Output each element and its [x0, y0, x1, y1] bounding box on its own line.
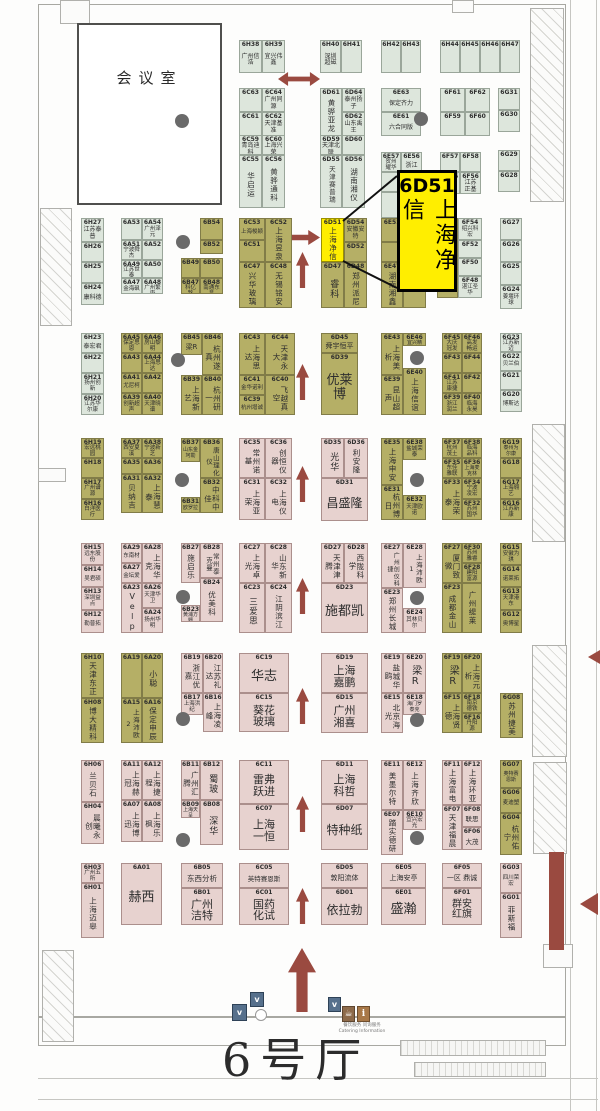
booth-6e32[interactable]: 6E32天津欧诺 [403, 495, 426, 520]
booth-6d61[interactable]: 6D61黄骅亚龙 [320, 88, 342, 136]
booth-6a53[interactable]: 6A53 [121, 218, 142, 240]
booth-6g04[interactable]: 6G04杭州佑宁 [500, 813, 522, 855]
highlight-callout-6d51[interactable]: 6D51 上海净信 [397, 170, 457, 292]
booth-6d62[interactable]: 6D62山东禹王 [342, 112, 365, 136]
booth-company-name: 天津港东 [501, 595, 521, 609]
booth-company-name: 东佳雅联 [443, 466, 461, 478]
booth-6b50[interactable]: 6B50 [200, 258, 223, 278]
booth-6e10[interactable]: 6E10宜兴宏光 [403, 810, 426, 830]
booth-6d64[interactable]: 6D64泰州扬子 [342, 88, 365, 112]
booth-6b45[interactable]: 6B45梁R [181, 333, 202, 355]
booth-company-name: 湖南湘仪 [350, 163, 358, 207]
booth-6f41[interactable]: 6F41江苏康捷 [442, 373, 462, 393]
booth-6c23[interactable]: 6C23三爱思 [239, 583, 265, 633]
booth-6f59[interactable]: 6F59 [440, 112, 465, 136]
booth-6e63[interactable]: 6E63保定齐力 [381, 88, 421, 112]
booth-6h01[interactable]: 6H01上海迈皋 [81, 883, 104, 938]
booth-6c51[interactable]: 6C51 [239, 240, 265, 262]
pillar-dot [171, 353, 185, 367]
booth-id: 6G28 [500, 172, 517, 179]
booth-6a39[interactable]: 6A39创新超声 [121, 393, 142, 415]
booth-6d01[interactable]: 6D01依拉勃 [321, 888, 368, 925]
booth-6h17[interactable]: 6H17广州谱源 [81, 478, 104, 499]
booth-6c05[interactable]: 6C05英特赛恩斯 [239, 863, 289, 888]
booth-6h04[interactable]: 6H04晨曦永创 [81, 802, 104, 844]
booth-6h12[interactable]: 6H12勒普拓 [81, 610, 104, 633]
booth-6c24[interactable]: 6C24江阴滨江 [265, 583, 292, 633]
booth-6h03[interactable]: 6H03广州五所 [81, 863, 104, 883]
booth-6h06[interactable]: 6H06兰贝石 [81, 760, 104, 802]
booth-6b47[interactable]: 6B47科亿路 [181, 278, 200, 294]
booth-6d51[interactable]: 6D51上海净信 [321, 218, 344, 262]
booth-6h42[interactable]: 6H42 [381, 40, 401, 73]
booth-6a35[interactable]: 6A35 [121, 458, 142, 474]
booth-6f36[interactable]: 6F36上海麦克林 [462, 458, 482, 478]
booth-6b52[interactable]: 6B52 [200, 240, 223, 254]
booth-6a15[interactable]: 6A15上海沛欧2 [121, 698, 142, 743]
booth-6e38[interactable]: 6E38盐城荣泰 [403, 438, 426, 460]
booth-6e35[interactable]: 6E35上海申安 [381, 438, 403, 485]
booth-6f34[interactable]: 6F34宁波凌宏 [462, 478, 482, 499]
booth-id: 6G20 [502, 391, 519, 398]
booth-6g08[interactable]: 6G08苏州捷美 [500, 693, 523, 738]
booth-6d27[interactable]: 6D27天津津腾 [321, 543, 344, 583]
booth-6a24[interactable]: 6A24扬州华明 [142, 608, 163, 633]
booth-id: 6A15 [123, 699, 140, 706]
booth-6h14[interactable]: 6H14吴君硕 [81, 565, 104, 587]
booth-6e40[interactable]: 6E40上海信谊 [403, 368, 426, 415]
booth-6c60[interactable]: 6C60上海兴荣 [262, 135, 285, 155]
booth-6c44[interactable]: 6C44天津永大 [265, 333, 295, 375]
booth-6e39[interactable]: 6E39昆山超声 [381, 375, 403, 415]
booth-6c53[interactable]: 6C53上海梭颖 [239, 218, 265, 240]
booth-6d48[interactable]: 6D48郑州派尼 [344, 262, 367, 308]
booth-6c15[interactable]: 6C15葵花 玻璃 [239, 693, 289, 732]
booth-6e12[interactable]: 6E12上海齐欣 [403, 760, 426, 810]
booth-id: 6C23 [244, 584, 261, 591]
booth-6d23[interactable]: 6D23施都凯 [321, 583, 368, 633]
booth-6a01[interactable]: 6A01赫西 [121, 863, 162, 925]
booth-6a23[interactable]: 6A23Velp [121, 583, 142, 633]
booth-6a28[interactable]: 6A28上海华克 [142, 543, 163, 583]
booth-6c19[interactable]: 6C19华志 [239, 653, 289, 693]
booth-6g28[interactable]: 6G28 [498, 171, 520, 192]
booth-6c40[interactable]: 6C40飞越真空 [265, 375, 295, 415]
booth-6e57[interactable]: 6E57贺州耀华 [381, 152, 401, 172]
booth-6f44[interactable]: 6F44 [462, 353, 482, 373]
booth-6g14[interactable]: 6G14诺莱拓 [500, 565, 522, 587]
booth-6f15[interactable]: 6F15上海贤德 [442, 693, 462, 733]
booth-6f18[interactable]: 6F18南京德铁 [462, 693, 482, 713]
booth-6d55[interactable]: 6D55天津赛普瑞 [320, 155, 342, 208]
booth-id: 6H39 [265, 41, 283, 48]
booth-6b12[interactable]: 6B12蜀玻 [200, 760, 223, 800]
booth-6a11[interactable]: 6A11上海赫冠 [121, 760, 142, 800]
booth-company-name: 兴华玻璃 [248, 270, 256, 307]
booth-6h20[interactable]: 6H20江苏华尔康 [81, 394, 104, 415]
booth-6f57[interactable]: 6F57 [440, 152, 460, 172]
booth-id: 6G30 [500, 111, 517, 118]
booth-id: 6C11 [256, 761, 273, 768]
booth-company-name: 上海贤德 [444, 701, 460, 732]
booth-6b39[interactable]: 6B39上海新艺 [181, 375, 202, 415]
booth-6g03[interactable]: 6G03四川荣宏 [500, 863, 522, 893]
booth-company-name: 优莱博 [322, 361, 357, 414]
booth-6c07[interactable]: 6C07上海 一恒 [239, 804, 289, 850]
booth-6d31[interactable]: 6D31昌盛隆 [321, 478, 368, 521]
booth-id: 6A31 [123, 475, 140, 482]
booth-6a43[interactable]: 6A43 [121, 353, 142, 373]
booth-6e24[interactable]: 6E24其林贝尔 [403, 608, 426, 633]
booth-6b36[interactable]: 6B36唐山理化仪 [200, 438, 223, 478]
booth-6e28[interactable]: 6E28上海沛欧1 [403, 543, 426, 588]
booth-company-name: 梁R [185, 341, 199, 354]
booth-6a40[interactable]: 6A40天津晓谱 [142, 393, 163, 415]
booth-6b46[interactable]: 6B46杭州遂真 [202, 333, 223, 375]
booth-6g18[interactable]: 6G18 [500, 458, 522, 478]
booth-6c47[interactable]: 6C47兴华玻璃 [239, 262, 265, 308]
booth-6b32[interactable]: 6B32中科中佳 [200, 478, 223, 513]
booth-id: 6F05 [454, 864, 471, 871]
booth-6f61[interactable]: 6F61 [440, 88, 465, 112]
booth-6b48[interactable]: 6B48南通东昌 [200, 278, 223, 294]
booth-6e20[interactable]: 6E20梁R [403, 653, 426, 693]
booth-6d36[interactable]: 6D36利安隆 [344, 438, 368, 478]
booth-id: 6G07 [502, 761, 519, 768]
booth-6h38[interactable]: 6H38广州信浩 [239, 40, 262, 73]
booth-6c59[interactable]: 6C59青岛迪科 [239, 135, 262, 155]
booth-6h24[interactable]: 6H24康科德 [81, 283, 104, 305]
booth-6b24[interactable]: 6B24优美科 [200, 578, 223, 622]
booth-6a27[interactable]: 6A27金坛爱 [121, 563, 142, 583]
booth-6d15[interactable]: 6D15广州 湘喜 [321, 693, 368, 733]
booth-6b49[interactable]: 6B49 [181, 258, 200, 278]
booth-company-name: 安徽为琪 [501, 551, 521, 564]
booth-6f42[interactable]: 6F42 [462, 373, 482, 393]
booth-6f46[interactable]: 6F46高发畅运 [462, 333, 482, 353]
booth-6a41[interactable]: 6A41尤尼柯 [121, 373, 142, 393]
booth-id: 6H47 [501, 41, 519, 48]
booth-6h16[interactable]: 6H16白洋医疗 [81, 499, 104, 520]
booth-6a38[interactable]: 6A38宁波新芝 [142, 438, 163, 458]
booth-6a37[interactable]: 6A37西安夏溪 [121, 438, 142, 458]
booth-6g24[interactable]: 6G24姜堰环球 [500, 285, 522, 309]
booth-6f37[interactable]: 6F37杭州茂土 [442, 438, 462, 458]
booth-6h45[interactable]: 6H45 [460, 40, 480, 73]
booth-id: 6B16 [204, 694, 221, 701]
booth-6b54[interactable]: 6B54 [200, 218, 223, 240]
booth-6g29[interactable]: 6G29 [498, 150, 520, 171]
booth-6g15[interactable]: 6G15安徽为琪 [500, 543, 522, 565]
booth-6f43[interactable]: 6F43 [442, 353, 462, 373]
booth-6h13[interactable]: 6H13深圳益点 [81, 587, 104, 610]
booth-6b20[interactable]: 6B20江苏礼达 [203, 653, 223, 693]
pillar-dot [410, 831, 424, 845]
booth-6f30[interactable]: 6F30苏州雅睿 [462, 543, 482, 563]
booth-6g01[interactable]: 6G01菲斯福 [500, 893, 522, 938]
booth-id: 6A27 [123, 564, 140, 571]
booth-id: 6G06 [502, 789, 519, 796]
booth-6d07[interactable]: 6D07特种纸 [321, 804, 368, 850]
booth-6f39[interactable]: 6F39浙江润兰 [442, 393, 462, 415]
booth-6d35[interactable]: 6D35光华 [321, 438, 344, 478]
booth-6b40[interactable]: 6B40杭州研一 [202, 375, 223, 415]
booth-6a45[interactable]: 6A45保定思恩 [121, 333, 142, 353]
booth-6e15[interactable]: 6E15北京海光 [381, 693, 403, 733]
booth-6c48[interactable]: 6C48无锡铭安 [265, 262, 292, 308]
booth-6b28[interactable]: 6B28常州泰克曼 [200, 543, 223, 578]
booth-6f50[interactable]: 6F50 [458, 258, 482, 276]
booth-6f01[interactable]: 6F01群安 红旗 [442, 888, 482, 925]
booth-6d47[interactable]: 6D47睿科 [321, 262, 344, 308]
booth-6e43[interactable]: 6E43上海美析 [381, 333, 403, 375]
booth-company-name: 华启运 [247, 163, 255, 207]
booth-6g30[interactable]: 6G30 [498, 110, 520, 132]
booth-6c01[interactable]: 6C01国药 化试 [239, 888, 289, 925]
booth-company-name: 江苏新迈 [501, 341, 521, 352]
booth-6g07[interactable]: 6G07奥特赛恩斯 [500, 760, 522, 788]
booth-company-name: 天津津腾 [325, 551, 341, 582]
booth-6d19[interactable]: 6D19上海 嘉鹏 [321, 653, 368, 693]
booth-id: 6F44 [464, 354, 481, 361]
booth-6e05[interactable]: 6E05上海安亭 [381, 863, 426, 888]
booth-6f05[interactable]: 6F05一区 鼎诚 [442, 863, 482, 888]
booth-6a46[interactable]: 6A46房山黎明 [142, 333, 163, 353]
booth-6f23[interactable]: 6F23成都金山 [442, 583, 462, 633]
booth-6b23[interactable]: 6B23黄浦方野 [181, 605, 200, 622]
booth-6h25[interactable]: 6H25 [81, 262, 104, 283]
booth-6a47[interactable]: 6A47金海砜 [121, 278, 142, 294]
booth-6c63[interactable]: 6C63 [239, 88, 262, 112]
booth-6f40[interactable]: 6F40临海永昊 [462, 393, 482, 415]
booth-6a07[interactable]: 6A07上海博迅 [121, 800, 142, 842]
booth-6e11[interactable]: 6E11美墨尔特 [381, 760, 403, 810]
booth-6b08[interactable]: 6B08深华 [200, 800, 223, 845]
booth-6h08[interactable]: 6H08博大精科 [81, 698, 104, 743]
booth-6f19[interactable]: 6F19梁R [442, 653, 462, 693]
booth-6f27[interactable]: 6F27厦门致微 [442, 543, 462, 583]
booth-6h47[interactable]: 6H47 [500, 40, 520, 73]
booth-6g23[interactable]: 6G23江苏新迈 [500, 333, 522, 352]
booth-6c41[interactable]: 6C41金华诺利 [239, 375, 265, 395]
booth-6d60[interactable]: 6D60 [342, 135, 365, 155]
booth-company-name: 广州缇莱 [468, 584, 476, 632]
booth-6c56[interactable]: 6C56黄骅通科 [262, 155, 285, 208]
booth-company-name: 上海乐枫 [145, 808, 161, 841]
booth-6c62[interactable]: 6C62天津基准 [262, 112, 285, 136]
booth-id: 6B46 [204, 334, 221, 341]
booth-company-name: 上海仪电 [271, 486, 287, 519]
booth-6c11[interactable]: 6C11雷弗 跃进 [239, 760, 289, 804]
booth-6h43[interactable]: 6H43 [401, 40, 421, 73]
booth-6e01[interactable]: 6E01盛瀚 [381, 888, 426, 925]
booth-6f58[interactable]: 6F58 [460, 152, 481, 172]
booth-6h44[interactable]: 6H44 [440, 40, 460, 73]
booth-6f32[interactable]: 6F32苏州国华 [462, 499, 482, 520]
booth-6f35[interactable]: 6F35东佳雅联 [442, 458, 462, 478]
booth-6c61[interactable]: 6C61 [239, 112, 262, 136]
booth-company-name: 唐山理化仪 [205, 446, 219, 477]
booth-6b16[interactable]: 6B16上海凌峰 [203, 693, 223, 732]
booth-6f54[interactable]: 6F54绍兴科宏 [458, 218, 482, 240]
booth-id: 6F15 [444, 694, 461, 701]
booth-6d52[interactable]: 6D52 [344, 242, 367, 262]
booth-6f07[interactable]: 6F07天津福晨 [442, 805, 462, 850]
booth-6a16[interactable]: 6A16保定申辰 [142, 698, 163, 743]
booth-6f45[interactable]: 6F45大庆冠发 [442, 333, 462, 353]
booth-6g16[interactable]: 6G16江苏新康 [500, 499, 522, 520]
pillar-dot [414, 112, 428, 126]
booth-6c27[interactable]: 6C27上海卓光 [239, 543, 265, 583]
booth-6f28[interactable]: 6F28建阳富源 [462, 563, 482, 583]
booth-6a44[interactable]: 6A44上海思达 [142, 353, 163, 373]
booth-6a42[interactable]: 6A42 [142, 373, 163, 393]
booth-6a12[interactable]: 6A12上海捷程 [142, 760, 163, 800]
booth-6h19[interactable]: 6H19宏远桃园 [81, 438, 104, 458]
booth-6a20[interactable]: 6A20小聪 [142, 653, 163, 698]
booth-company-name: 上海净信 [329, 226, 337, 261]
booth-6a49[interactable]: 6A49江苏世泰 [121, 260, 142, 278]
booth-6h41[interactable]: 6H41 [341, 40, 362, 73]
booth-6b27[interactable]: 6B27施启乐 [181, 543, 200, 583]
booth-6g31[interactable]: 6G31 [498, 88, 520, 110]
booth-6a52[interactable]: 6A52 [142, 240, 163, 260]
booth-6c28[interactable]: 6C28山东新华 [265, 543, 292, 583]
booth-6g19[interactable]: 6G19泰州为尔康 [500, 438, 522, 458]
booth-6g20[interactable]: 6G20博斯达 [500, 390, 522, 412]
booth-6c36[interactable]: 6C36创恒仪器 [265, 438, 292, 478]
booth-6g13[interactable]: 6G13天津港东 [500, 587, 522, 610]
booth-6b11[interactable]: 6B11广州汇腾 [181, 760, 200, 800]
booth-6e27[interactable]: 6E27广州创仪科捷 [381, 543, 403, 588]
booth-6a29[interactable]: 6A29东南材 [121, 543, 142, 563]
booth-6g21[interactable]: 6G21 [500, 371, 522, 390]
booth-6c64[interactable]: 6C64广州同源 [262, 88, 285, 112]
booth-6a54[interactable]: 6A54广州泽元 [142, 218, 163, 240]
booth-company-name: 上海天呈 [182, 808, 199, 818]
booth-6e18[interactable]: 6E18海门罗泰克 [403, 693, 426, 715]
booth-6d05[interactable]: 6D05敦阳流体 [321, 863, 368, 888]
booth-6g17[interactable]: 6G17上海翱艺 [500, 478, 522, 499]
booth-6a31[interactable]: 6A31贝纳吉 [121, 474, 142, 513]
booth-id: 6H42 [382, 41, 400, 48]
booth-6d28[interactable]: 6D28西陇科学 [344, 543, 368, 583]
booth-6g06[interactable]: 6G06麦迪塑 [500, 788, 522, 813]
booth-6f20[interactable]: 6F20上海元析 [462, 653, 482, 693]
booth-6d56[interactable]: 6D56湖南湘仪 [342, 155, 365, 208]
booth-6f08[interactable]: 6F08联思 [462, 805, 482, 827]
booth-company-name: 奥博星 [502, 618, 521, 632]
booth-6b19[interactable]: 6B19浙江优嘉 [181, 653, 203, 693]
booth-6c35[interactable]: 6C35常州诺基 [239, 438, 265, 478]
booth-6h27[interactable]: 6H27江苏泰普 [81, 218, 104, 242]
booth-company-name: 浙江优嘉 [184, 661, 200, 692]
booth-6f52[interactable]: 6F52 [458, 240, 482, 258]
booth-6a32[interactable]: 6A32上海慧泰 [142, 474, 163, 513]
booth-6f60[interactable]: 6F60 [465, 112, 490, 136]
booth-6b01[interactable]: 6B01广州 洁特 [181, 888, 223, 925]
booth-6d11[interactable]: 6D11上海 科哲 [321, 760, 368, 804]
booth-6b31[interactable]: 6B31欧罗拉 [181, 497, 200, 513]
booth-6a36[interactable]: 6A36 [142, 458, 163, 474]
booth-6d54[interactable]: 6D54安徽安特 [344, 218, 367, 242]
booth-6b05[interactable]: 6B05东西分析 [181, 863, 223, 888]
booth-6f62[interactable]: 6F62 [465, 88, 490, 112]
booth-company-name: 天津华卫 [143, 591, 162, 607]
booth-company-name: 上海华克 [145, 551, 161, 582]
booth-6e46[interactable]: 6E46宜兴精品 [403, 333, 426, 346]
booth-company-name: 一区 鼎诚 [446, 871, 478, 887]
booth-6d45[interactable]: 6D45舜宇恒平 [321, 333, 358, 353]
booth-6c43[interactable]: 6C43上海思达 [239, 333, 265, 375]
booth-6h26[interactable]: 6H26 [81, 242, 104, 262]
booth-6b37[interactable]: 6B37山东金坷勒 [181, 438, 200, 462]
booth-6d39[interactable]: 6D39优莱博 [321, 353, 358, 415]
booth-6c39[interactable]: 6C39杭州增诚 [239, 395, 265, 415]
booth-6c52[interactable]: 6C52上海昱泉 [265, 218, 292, 262]
booth-6e07[interactable]: 6E07踏实德研 [381, 810, 403, 855]
booth-6g25[interactable]: 6G25 [500, 262, 522, 285]
booth-6c31[interactable]: 6C31上海亚荣 [239, 478, 265, 520]
building-structure [533, 762, 567, 854]
booth-6h23[interactable]: 6H23泰宏君 [81, 333, 104, 353]
booth-6c55[interactable]: 6C55华启运 [239, 155, 262, 208]
booth-6g26[interactable]: 6G26 [500, 240, 522, 262]
booth-cell[interactable]: 广州缇莱 [462, 583, 482, 633]
booth-6g22[interactable]: 6G22贝兰伯 [500, 352, 522, 371]
booth-6a50[interactable]: 6A50 [142, 260, 163, 278]
booth-6h46[interactable]: 6H46 [480, 40, 500, 73]
booth-6a19[interactable]: 6A19 [121, 653, 142, 698]
booth-6f11[interactable]: 6F11上海富电 [442, 760, 462, 805]
booth-6e23[interactable]: 6E23郑州长城 [381, 588, 403, 633]
booth-6h21[interactable]: 6H21扬州创新 [81, 373, 104, 394]
booth-6a26[interactable]: 6A26天津华卫 [142, 583, 163, 608]
booth-6h10[interactable]: 6H10天津东正 [81, 653, 104, 698]
booth-6g12[interactable]: 6G12奥博星 [500, 610, 522, 633]
booth-company-name: 绍兴科宏 [459, 226, 481, 239]
booth-6e56[interactable]: 6E56浙江 [401, 152, 422, 172]
pillar-dot [176, 712, 190, 726]
booth-6b09[interactable]: 6B09上海天呈 [181, 800, 200, 818]
booth-6f56[interactable]: 6F56江苏正基 [460, 172, 481, 194]
booth-6f33[interactable]: 6F33上海荣泰 [442, 478, 462, 520]
booth-6f48[interactable]: 6F48湛江圣华 [458, 276, 482, 298]
booth-6a51[interactable]: 6A51宁波舜杰 [121, 240, 142, 260]
booth-6g27[interactable]: 6G27 [500, 218, 522, 240]
booth-6e19[interactable]: 6E19盐城华鸥 [381, 653, 403, 693]
booth-company-name: 上海沛欧2 [125, 706, 139, 742]
booth-6f12[interactable]: 6F12上海环亚 [462, 760, 482, 805]
booth-6f16[interactable]: 6F16丹阳源 [462, 713, 482, 733]
booth-6a08[interactable]: 6A08上海乐枫 [142, 800, 163, 842]
booth-6h15[interactable]: 6H15远东股份 [81, 543, 104, 565]
booth-6e31[interactable]: 6E31杭州博日 [381, 485, 403, 520]
booth-id: 6A43 [123, 354, 140, 361]
booth-6d59[interactable]: 6D59天津北联 [320, 135, 342, 155]
booth-6f38[interactable]: 6F38临海品科 [462, 438, 482, 458]
booth-company-name: 广州同源 [263, 96, 284, 111]
booth-6c32[interactable]: 6C32上海仪电 [265, 478, 292, 520]
booth-id: 6H45 [461, 41, 479, 48]
booth-6a48[interactable]: 6A48广州繁康 [142, 278, 163, 294]
booth-6f06[interactable]: 6F06大茂 [462, 827, 482, 850]
booth-6h39[interactable]: 6H39宜兴伟鑫 [262, 40, 285, 73]
booth-company-name: 深圳超磁 [321, 48, 340, 72]
booth-6h18[interactable]: 6H18 [81, 458, 104, 478]
booth-6h22[interactable]: 6H22 [81, 353, 104, 373]
booth-6h40[interactable]: 6H40深圳超磁 [320, 40, 341, 73]
